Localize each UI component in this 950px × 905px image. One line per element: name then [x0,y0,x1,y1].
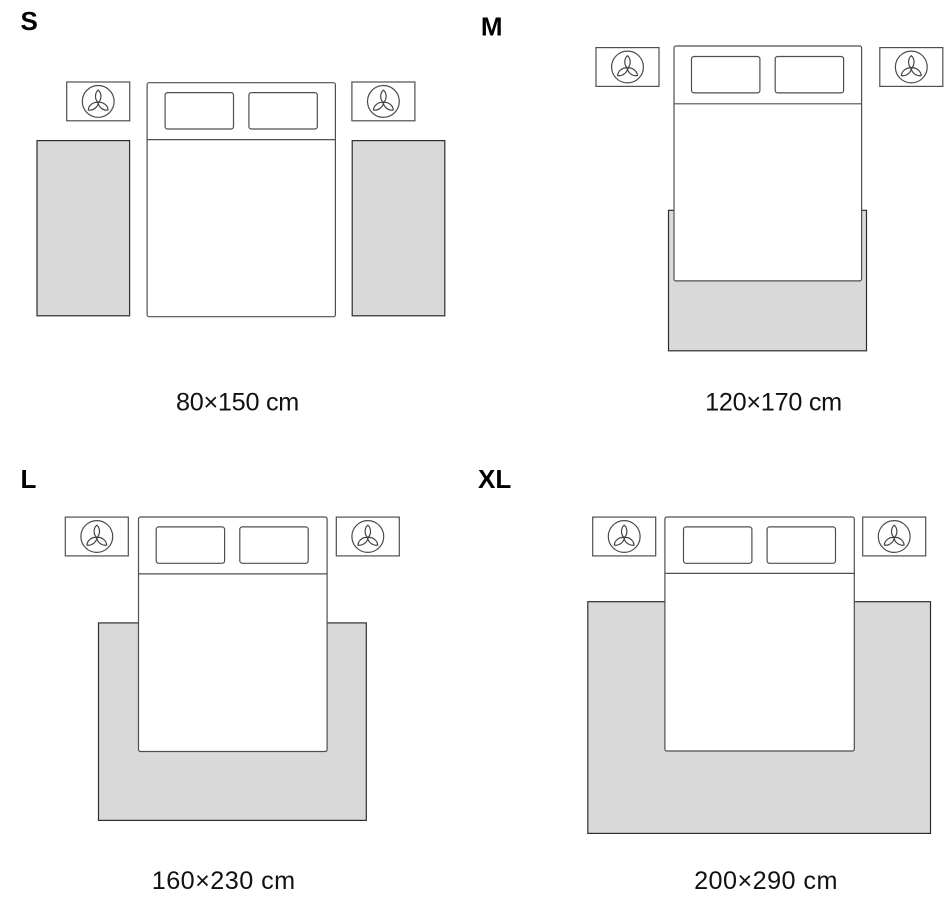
svg-text:S: S [21,6,38,36]
svg-text:M: M [481,11,503,41]
svg-text:200×290 cm: 200×290 cm [694,867,838,895]
svg-text:XL: XL [478,464,511,494]
svg-text:L: L [21,464,37,494]
svg-text:80×150 cm: 80×150 cm [176,388,299,416]
svg-text:120×170 cm: 120×170 cm [705,388,842,416]
svg-text:160×230 cm: 160×230 cm [152,867,296,895]
